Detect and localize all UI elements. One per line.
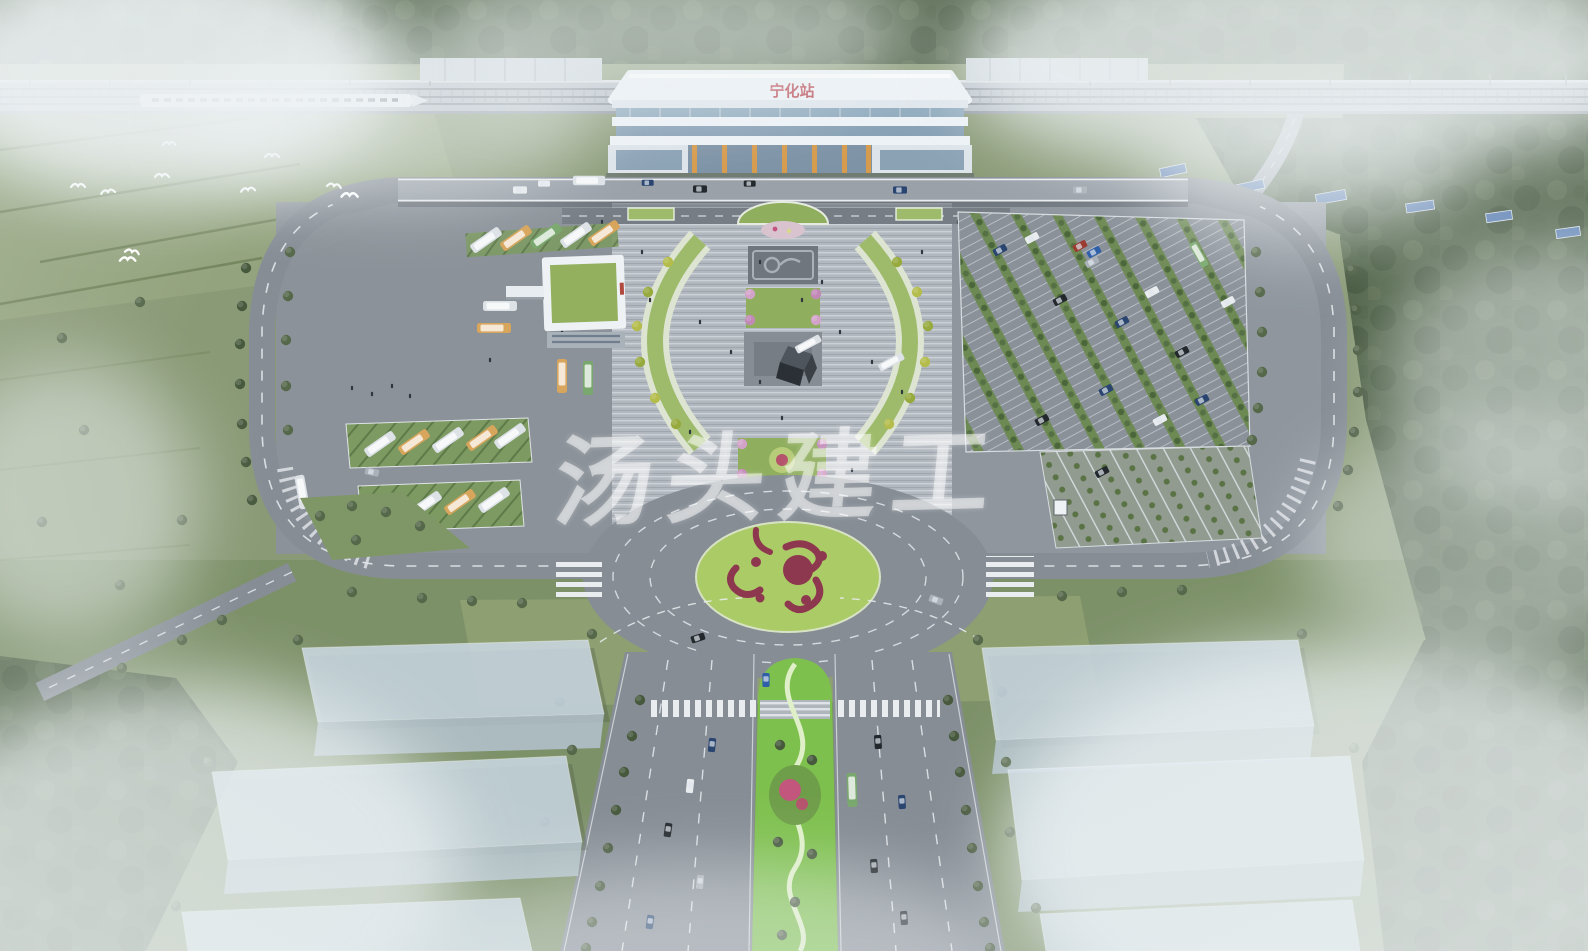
station-sign: 宁化站	[769, 82, 814, 100]
building-block	[212, 756, 588, 894]
train	[140, 94, 428, 107]
building-block	[982, 640, 1320, 774]
roundabout-garden	[696, 522, 880, 632]
building-block	[302, 640, 610, 756]
pavement-emblem	[748, 246, 818, 284]
aerial-render: 宁化站	[0, 0, 1588, 951]
median-garden	[752, 658, 838, 951]
building-block	[1008, 756, 1364, 912]
station-building: 宁化站	[560, 74, 1020, 188]
